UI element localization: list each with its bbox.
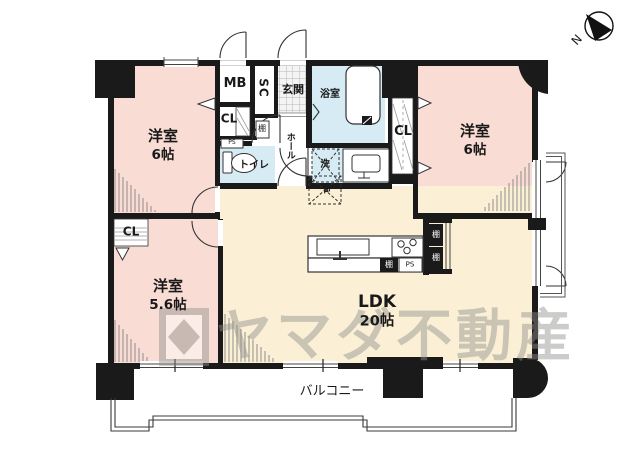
- bedroom-top-left-size: 6帖: [152, 148, 175, 162]
- bedroom-bottom-left-size: 5.6帖: [149, 298, 186, 312]
- bathroom-label: 浴室: [320, 90, 340, 101]
- toilet-label: トイレ: [239, 161, 269, 172]
- ldk-size: 20帖: [360, 314, 395, 329]
- bedroom-top-left-name: 洋室: [148, 129, 178, 145]
- closet-label-right: CL: [394, 125, 412, 139]
- shelf-label-kitchen: 棚: [385, 261, 393, 269]
- bathtub-icon: [346, 66, 380, 124]
- compass-icon: [585, 12, 613, 41]
- meter-box-label: MB: [224, 77, 247, 91]
- hall-label: ホール: [284, 133, 293, 160]
- ps-label-kitchen: PS: [406, 261, 415, 268]
- closet-label-bl: CL: [123, 226, 139, 239]
- shelf-label-nook-lower: 棚: [432, 254, 440, 262]
- ldk-floor: [220, 186, 532, 365]
- closet-label-top: CL: [221, 113, 237, 126]
- entrance-label: 玄関: [282, 84, 304, 96]
- kitchen-sink-icon: [317, 239, 369, 255]
- ps-label-hall: PS: [228, 140, 235, 146]
- floor-plan: ヤマダ不動産 洋室 6帖 洋室 6帖 洋室 5.6帖 LDK 20帖 バルコニー…: [0, 0, 640, 469]
- shelf-label-hall: 棚: [258, 125, 266, 133]
- washbasin-icon: [343, 149, 389, 182]
- ldk-name: LDK: [358, 294, 396, 312]
- room-fills: [112, 60, 532, 365]
- washer-label: 洗: [320, 160, 330, 170]
- shelf-label-nook-upper: 棚: [432, 231, 440, 239]
- closet-small-interior: [236, 107, 250, 136]
- balcony-outline: [111, 398, 516, 431]
- bedroom-top-right-name: 洋室: [460, 124, 490, 140]
- bedroom-bottom-left-name: 洋室: [153, 279, 183, 295]
- bedroom-top-right-size: 6帖: [464, 143, 487, 157]
- shoe-closet-label: SC: [257, 78, 270, 97]
- balcony-label: バルコニー: [300, 385, 365, 399]
